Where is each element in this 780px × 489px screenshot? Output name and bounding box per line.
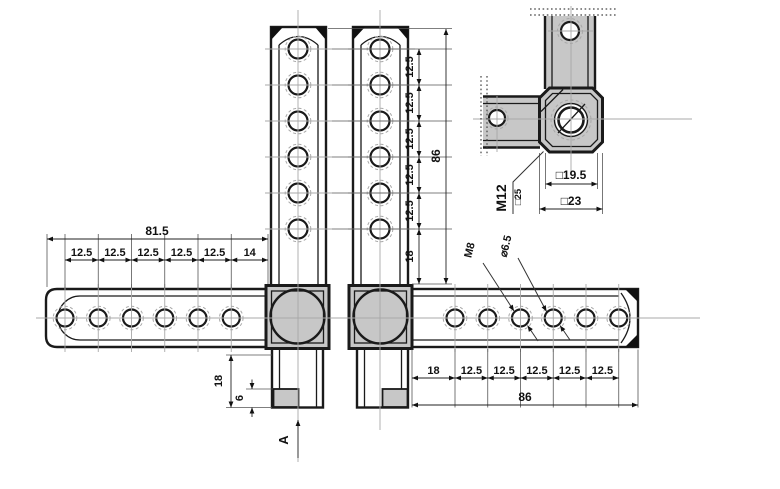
callout-thread-small: M8 bbox=[462, 241, 477, 259]
dim-label: 12.5 bbox=[404, 164, 416, 185]
dim-label: 12.5 bbox=[104, 247, 125, 259]
chamfer-corner bbox=[625, 289, 638, 302]
dim-label: 12.5 bbox=[404, 56, 416, 77]
right-lower-tab bbox=[357, 349, 408, 408]
chamfer-corner bbox=[315, 27, 326, 40]
callout-square-boss: □25 bbox=[513, 188, 524, 205]
detail-view-corner-joint bbox=[483, 16, 603, 152]
dim-label: 12.5 bbox=[526, 365, 547, 377]
dim-label: 12.5 bbox=[404, 200, 416, 221]
dim-label: 12.5 bbox=[137, 247, 158, 259]
section-label: A bbox=[276, 435, 291, 445]
cad-drawing-page: 81.5 12.5 12.5 12.5 12.5 12.5 14 86 12.5… bbox=[0, 0, 780, 489]
dim-label: 18 bbox=[427, 365, 439, 377]
dim-label-tab-foot: 6 bbox=[234, 395, 246, 401]
tab-foot bbox=[274, 389, 299, 407]
callout-square-inner: □19.5 bbox=[556, 168, 587, 182]
dim-label: 12.5 bbox=[461, 365, 482, 377]
dim-label-overall-bottom: 86 bbox=[518, 390, 532, 404]
dim-label: 12.5 bbox=[171, 247, 192, 259]
dim-label-overall-left: 81.5 bbox=[145, 224, 169, 238]
left-lower-tab bbox=[272, 349, 323, 408]
chamfer-corner bbox=[271, 27, 283, 40]
dim-label: 12.5 bbox=[592, 365, 613, 377]
dia-leader bbox=[518, 258, 547, 312]
dim-label: 12.5 bbox=[71, 247, 92, 259]
tab-foot bbox=[383, 389, 408, 407]
chamfer-corner bbox=[397, 27, 408, 40]
right-corner-block bbox=[349, 286, 412, 349]
dim-label: 14 bbox=[244, 247, 257, 259]
dim-label: 12.5 bbox=[204, 247, 225, 259]
part-geometry bbox=[46, 16, 638, 408]
dim-label-tab-height: 18 bbox=[213, 375, 225, 387]
holes bbox=[57, 22, 628, 327]
dim-label: 12.5 bbox=[404, 92, 416, 113]
m8-leader-stub bbox=[528, 326, 539, 342]
leaders bbox=[298, 152, 570, 459]
dim-label: 12.5 bbox=[559, 365, 580, 377]
dim-label: 12.5 bbox=[404, 128, 416, 149]
left-corner-block bbox=[266, 286, 329, 349]
chamfer-corner bbox=[625, 334, 638, 347]
dim-label: 18 bbox=[404, 250, 416, 262]
callout-hole-diameter: ⌀6.5 bbox=[498, 234, 515, 258]
dia-leader-stub bbox=[560, 326, 570, 341]
callout-square-outer: □23 bbox=[561, 194, 582, 208]
chamfer-corner bbox=[353, 27, 365, 40]
dim-label-overall-vertical: 86 bbox=[429, 149, 443, 163]
technical-drawing-angle-bracket: 81.5 12.5 12.5 12.5 12.5 12.5 14 86 12.5… bbox=[0, 0, 780, 489]
callout-thread-main: M12 bbox=[493, 184, 509, 211]
dim-label: 12.5 bbox=[493, 365, 514, 377]
